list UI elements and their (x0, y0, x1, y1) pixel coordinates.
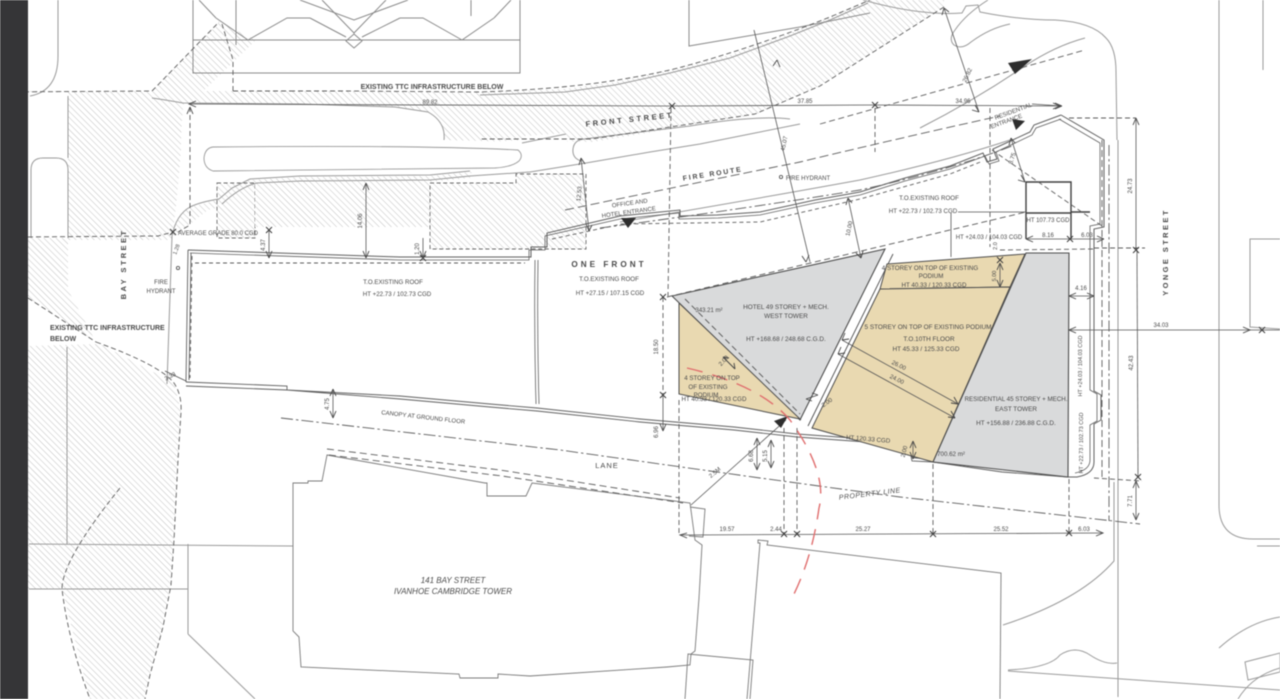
svg-text:EXISTING TTC INFRASTRUCTURE BE: EXISTING TTC INFRASTRUCTURE BELOW (361, 84, 504, 91)
svg-text:4 STOREY ON TOP: 4 STOREY ON TOP (684, 375, 740, 382)
svg-text:HT +22.73 / 102.73 CGD: HT +22.73 / 102.73 CGD (1079, 413, 1085, 474)
svg-text:HT +24.03 / 104.03 CGD: HT +24.03 / 104.03 CGD (1078, 336, 1084, 397)
svg-text:37.85: 37.85 (797, 99, 813, 105)
svg-text:141 BAY STREET: 141 BAY STREET (421, 576, 487, 585)
svg-text:HT +24.03 / 104.03 CGD: HT +24.03 / 104.03 CGD (956, 235, 1023, 241)
svg-text:HT +156.88 / 236.88 C.G.D.: HT +156.88 / 236.88 C.G.D. (976, 420, 1056, 427)
svg-text:HT +22.73 / 102.73 CGD: HT +22.73 / 102.73 CGD (363, 291, 432, 298)
svg-text:4.37: 4.37 (261, 239, 267, 251)
svg-text:1.20: 1.20 (415, 243, 421, 255)
svg-text:T.O.10TH FLOOR: T.O.10TH FLOOR (903, 336, 955, 343)
svg-text:FIRE HYDRANT: FIRE HYDRANT (786, 176, 831, 182)
svg-text:2.0: 2.0 (993, 242, 999, 250)
svg-text:700.62 m²: 700.62 m² (937, 451, 965, 458)
svg-text:EAST TOWER: EAST TOWER (995, 406, 1037, 413)
svg-text:18.50: 18.50 (654, 339, 660, 355)
svg-text:6.96: 6.96 (654, 426, 660, 438)
svg-text:HYDRANT: HYDRANT (146, 289, 175, 295)
svg-text:4.75: 4.75 (325, 398, 331, 410)
svg-text:5 STOREY ON TOP OF EXISTING PO: 5 STOREY ON TOP OF EXISTING PODIUM (865, 324, 992, 331)
svg-text:BELOW: BELOW (50, 336, 76, 343)
svg-text:AVERAGE GRADE 80.0 CGD: AVERAGE GRADE 80.0 CGD (178, 231, 259, 237)
svg-text:HT 40.33 / 120.33 CGD: HT 40.33 / 120.33 CGD (682, 396, 747, 403)
svg-text:T.O.EXISTING ROOF: T.O.EXISTING ROOF (579, 276, 639, 283)
svg-text:343.21 m²: 343.21 m² (695, 308, 722, 314)
svg-text:HT +27.15 / 107.15 CGD: HT +27.15 / 107.15 CGD (576, 290, 645, 297)
svg-text:HT 107.73 CGD: HT 107.73 CGD (1027, 218, 1071, 224)
svg-text:25.52: 25.52 (993, 527, 1009, 533)
svg-text:HT +22.73 / 102.73 CGD: HT +22.73 / 102.73 CGD (889, 208, 958, 215)
svg-text:8.16: 8.16 (1042, 233, 1054, 239)
svg-text:6.03: 6.03 (1081, 233, 1093, 239)
svg-text:T.O.EXISTING ROOF: T.O.EXISTING ROOF (363, 279, 423, 286)
svg-text:FIRE: FIRE (154, 280, 168, 286)
svg-text:34.03: 34.03 (1153, 323, 1169, 329)
svg-text:24.73: 24.73 (1128, 178, 1134, 194)
svg-text:5.00: 5.00 (992, 271, 998, 282)
svg-text:HT +168.68 / 248.68 C.G.D.: HT +168.68 / 248.68 C.G.D. (746, 336, 826, 343)
svg-text:LANE: LANE (595, 461, 619, 470)
svg-text:5.15: 5.15 (763, 450, 769, 462)
svg-text:OF EXISTING: OF EXISTING (688, 384, 727, 391)
svg-text:HOTEL 49 STOREY + MECH.: HOTEL 49 STOREY + MECH. (743, 304, 829, 311)
svg-text:PODIUM: PODIUM (919, 273, 944, 280)
svg-text:25.27: 25.27 (855, 527, 871, 533)
svg-text:6.03: 6.03 (1078, 527, 1090, 533)
svg-text:RESIDENTIAL 45 STOREY + MECH.: RESIDENTIAL 45 STOREY + MECH. (965, 396, 1068, 403)
svg-text:4.16: 4.16 (1075, 286, 1087, 292)
svg-text:4 STOREY ON TOP OF EXISTING: 4 STOREY ON TOP OF EXISTING (882, 265, 979, 272)
svg-text:HT 40.33 / 120.33 CGD: HT 40.33 / 120.33 CGD (902, 282, 967, 289)
svg-text:34.96: 34.96 (955, 99, 971, 105)
svg-text:T.O.EXISTING ROOF: T.O.EXISTING ROOF (899, 195, 959, 202)
svg-text:ONE FRONT: ONE FRONT (571, 260, 646, 269)
svg-text:YONGE STREET: YONGE STREET (1161, 208, 1170, 296)
svg-text:WEST TOWER: WEST TOWER (764, 313, 808, 320)
svg-text:BAY STREET: BAY STREET (119, 229, 128, 300)
svg-text:HT 45.33 / 125.33 CGD: HT 45.33 / 125.33 CGD (892, 346, 959, 353)
svg-text:EXISTING TTC INFRASTRUCTURE: EXISTING TTC INFRASTRUCTURE (50, 325, 165, 332)
svg-text:6.68: 6.68 (749, 450, 755, 462)
svg-text:IVANHOE CAMBRIDGE TOWER: IVANHOE CAMBRIDGE TOWER (394, 587, 512, 596)
svg-text:19.57: 19.57 (719, 527, 735, 533)
svg-text:7.71: 7.71 (1128, 495, 1134, 507)
svg-text:14.06: 14.06 (358, 213, 364, 229)
svg-text:89.82: 89.82 (422, 100, 438, 106)
svg-text:2.44: 2.44 (770, 527, 782, 533)
svg-text:42.43: 42.43 (1129, 355, 1135, 371)
